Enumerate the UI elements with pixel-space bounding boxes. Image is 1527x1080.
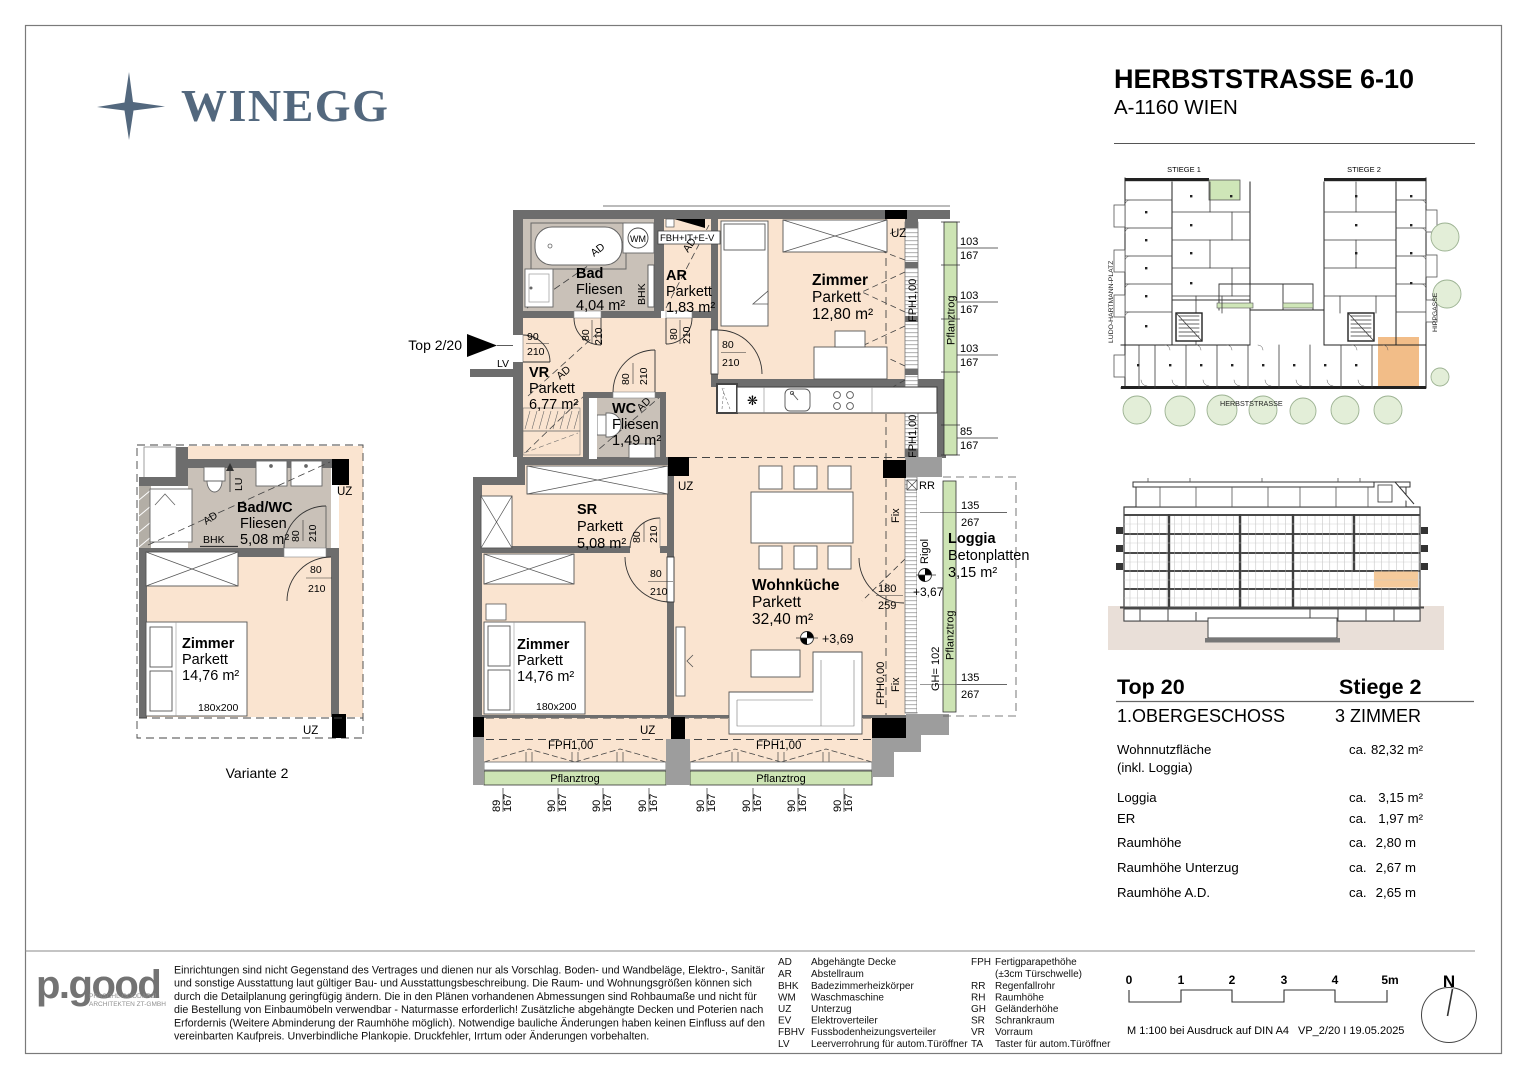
- svg-text:Fliesen: Fliesen: [612, 417, 659, 433]
- svg-text:210: 210: [722, 357, 740, 369]
- svg-text:STIEGE 2: STIEGE 2: [1347, 165, 1381, 174]
- svg-text:Raumhöhe Unterzug: Raumhöhe Unterzug: [1117, 860, 1239, 875]
- svg-text:HERBSTSTRASSE: HERBSTSTRASSE: [1220, 399, 1283, 408]
- svg-text:Zimmer: Zimmer: [517, 637, 570, 653]
- svg-text:LUDO-HARTMANN-PLATZ: LUDO-HARTMANN-PLATZ: [1108, 261, 1115, 343]
- svg-text:5,08 m²: 5,08 m²: [240, 532, 289, 548]
- svg-text:Zimmer: Zimmer: [812, 272, 868, 289]
- svg-text:90: 90: [527, 331, 539, 343]
- svg-text:Fertigparapethöhe: Fertigparapethöhe: [995, 957, 1077, 968]
- svg-text:180x200: 180x200: [198, 702, 238, 714]
- svg-text:Badezimmerheizkörper: Badezimmerheizkörper: [811, 981, 914, 992]
- svg-text:167: 167: [960, 440, 978, 452]
- svg-text:ARCHITEKTEN ZT-GMBH: ARCHITEKTEN ZT-GMBH: [89, 1001, 166, 1008]
- svg-text:Rigol: Rigol: [919, 539, 931, 564]
- svg-text:180x200: 180x200: [536, 701, 576, 713]
- svg-text:3,15 m²: 3,15 m²: [948, 565, 997, 581]
- svg-text:ca.: ca.: [1349, 860, 1367, 875]
- svg-text:103: 103: [960, 290, 978, 302]
- svg-text:1.OBERGESCHOSS: 1.OBERGESCHOSS: [1117, 706, 1285, 726]
- svg-text:12,80 m²: 12,80 m²: [812, 306, 873, 323]
- svg-text:Parkett: Parkett: [666, 284, 712, 300]
- svg-text:82,32 m²: 82,32 m²: [1371, 742, 1424, 757]
- svg-text:Geländerhöhe: Geländerhöhe: [995, 1004, 1059, 1015]
- svg-text:167: 167: [557, 794, 569, 812]
- svg-text:210: 210: [681, 326, 693, 344]
- svg-text:FPH1,00: FPH1,00: [907, 415, 919, 458]
- svg-text:14,76 m²: 14,76 m²: [182, 668, 239, 684]
- svg-text:167: 167: [706, 794, 718, 812]
- svg-text:AD: AD: [778, 957, 792, 968]
- svg-text:210: 210: [307, 524, 319, 542]
- svg-text:ca.: ca.: [1349, 790, 1367, 805]
- svg-text:3 ZIMMER: 3 ZIMMER: [1335, 706, 1421, 726]
- svg-text:ca.: ca.: [1349, 835, 1367, 850]
- svg-text:HERBSTSTRASSE 6-10: HERBSTSTRASSE 6-10: [1114, 64, 1414, 94]
- svg-text:Einrichtungen sind nicht Gegen: Einrichtungen sind nicht Gegenstand des …: [174, 965, 765, 977]
- svg-text:Pflanztrog: Pflanztrog: [550, 773, 600, 785]
- svg-text:Schrankraum: Schrankraum: [995, 1016, 1054, 1027]
- svg-text:(±3cm Türschwelle): (±3cm Türschwelle): [995, 969, 1082, 980]
- svg-text:Elektroverteiler: Elektroverteiler: [811, 1016, 878, 1027]
- svg-text:3: 3: [1281, 973, 1288, 987]
- svg-text:135: 135: [961, 672, 979, 684]
- svg-text:SR: SR: [971, 1016, 985, 1027]
- svg-text:Parkett: Parkett: [812, 289, 862, 306]
- svg-text:167: 167: [602, 794, 614, 812]
- svg-text:ca.: ca.: [1349, 742, 1367, 757]
- svg-text:80: 80: [650, 568, 662, 580]
- svg-text:167: 167: [960, 304, 978, 316]
- svg-text:Loggia: Loggia: [1117, 790, 1157, 805]
- svg-text:167: 167: [648, 794, 660, 812]
- svg-text:Pflanztrog: Pflanztrog: [945, 610, 957, 660]
- svg-text:4: 4: [1332, 973, 1339, 987]
- svg-text:167: 167: [502, 794, 514, 812]
- svg-text:210: 210: [638, 367, 650, 385]
- svg-text:259: 259: [878, 600, 896, 612]
- svg-text:2,67 m: 2,67 m: [1376, 860, 1416, 875]
- svg-text:Wohnküche: Wohnküche: [752, 577, 840, 594]
- svg-text:UZ: UZ: [891, 228, 906, 240]
- svg-text:GH: GH: [971, 1004, 986, 1015]
- svg-text:135: 135: [961, 500, 979, 512]
- svg-text:Raumhöhe A.D.: Raumhöhe A.D.: [1117, 885, 1210, 900]
- svg-text:Zimmer: Zimmer: [182, 636, 235, 652]
- svg-text:Parkett: Parkett: [752, 594, 802, 611]
- svg-text:Abgehängte Decke: Abgehängte Decke: [811, 957, 897, 968]
- svg-text:167: 167: [843, 794, 855, 812]
- svg-text:Waschmaschine: Waschmaschine: [811, 993, 884, 1004]
- svg-text:1,97 m²: 1,97 m²: [1378, 811, 1423, 826]
- svg-text:Parkett: Parkett: [577, 519, 623, 535]
- svg-text:80: 80: [310, 564, 322, 576]
- svg-text:80: 80: [620, 373, 632, 385]
- svg-text:1,49 m²: 1,49 m²: [612, 433, 661, 449]
- svg-text:ER: ER: [1117, 811, 1135, 826]
- svg-text:(inkl. Loggia): (inkl. Loggia): [1117, 760, 1193, 775]
- svg-text:1: 1: [1178, 973, 1185, 987]
- svg-text:267: 267: [961, 517, 979, 529]
- svg-text:vereinbarten Kaufpreis. Unverb: vereinbarten Kaufpreis. Unverbindliche P…: [174, 1031, 649, 1043]
- svg-text:1,83 m²: 1,83 m²: [666, 300, 715, 316]
- svg-text:4,04 m²: 4,04 m²: [576, 298, 625, 314]
- svg-text:WM: WM: [778, 993, 796, 1004]
- svg-text:6,77 m²: 6,77 m²: [529, 397, 578, 413]
- svg-text:Regenfallrohr: Regenfallrohr: [995, 981, 1056, 992]
- svg-text:UZ: UZ: [640, 725, 655, 737]
- svg-text:FPH: FPH: [971, 957, 991, 968]
- svg-text:die Bestellung von Einbaumöbel: die Bestellung von Einbaumöbeln verwendb…: [174, 1004, 763, 1016]
- svg-text:Parkett: Parkett: [517, 653, 563, 669]
- svg-text:2,80 m: 2,80 m: [1376, 835, 1416, 850]
- svg-text:5m: 5m: [1381, 973, 1398, 987]
- svg-text:PRASCHL-GOODARZI: PRASCHL-GOODARZI: [89, 993, 157, 1000]
- svg-text:Raumhöhe: Raumhöhe: [1117, 835, 1182, 850]
- svg-text:EV: EV: [778, 1016, 792, 1027]
- svg-text:HIPPGASSE: HIPPGASSE: [1432, 292, 1439, 332]
- svg-text:STIEGE 1: STIEGE 1: [1167, 165, 1201, 174]
- svg-text:Wohnnutzfläche: Wohnnutzfläche: [1117, 742, 1211, 757]
- svg-text:VR: VR: [971, 1027, 985, 1038]
- svg-text:Top 2/20: Top 2/20: [408, 337, 462, 353]
- svg-text:Fix: Fix: [890, 677, 902, 692]
- svg-text:Vorraum: Vorraum: [995, 1027, 1033, 1038]
- svg-text:ca.: ca.: [1349, 885, 1367, 900]
- svg-text:TA: TA: [971, 1039, 983, 1050]
- svg-text:ca.: ca.: [1349, 811, 1367, 826]
- svg-text:167: 167: [797, 794, 809, 812]
- svg-text:durch die Detailplanung gering: durch die Detailplanung geringfügig ände…: [174, 991, 757, 1003]
- svg-text:Pflanztrog: Pflanztrog: [946, 295, 958, 345]
- svg-text:3,15 m²: 3,15 m²: [1378, 790, 1423, 805]
- svg-text:Variante 2: Variante 2: [226, 765, 289, 781]
- svg-text:UZ: UZ: [337, 486, 352, 498]
- svg-text:Loggia: Loggia: [948, 531, 996, 547]
- svg-text:80: 80: [631, 531, 643, 543]
- svg-text:Parkett: Parkett: [182, 652, 228, 668]
- svg-text:2: 2: [1229, 973, 1236, 987]
- svg-text:Pflanztrog: Pflanztrog: [756, 773, 806, 785]
- svg-text:WC: WC: [612, 401, 637, 417]
- svg-text:80: 80: [668, 328, 680, 340]
- svg-text:Parkett: Parkett: [529, 381, 575, 397]
- svg-text:Bad/WC: Bad/WC: [237, 500, 293, 516]
- svg-text:Erfordernis (Weitere Abminderu: Erfordernis (Weitere Abminderung der Rau…: [174, 1017, 765, 1029]
- svg-text:167: 167: [960, 250, 978, 262]
- svg-text:FPH1,00: FPH1,00: [548, 740, 593, 752]
- svg-text:RH: RH: [971, 993, 985, 1004]
- svg-text:UZ: UZ: [678, 481, 693, 493]
- svg-text:103: 103: [960, 236, 978, 248]
- svg-text:Fliesen: Fliesen: [576, 282, 623, 298]
- svg-text:Bad: Bad: [576, 266, 603, 282]
- svg-text:AR: AR: [778, 969, 792, 980]
- svg-text:WINEGG: WINEGG: [181, 80, 389, 131]
- svg-text:Top 20: Top 20: [1117, 675, 1185, 699]
- svg-text:AR: AR: [666, 268, 687, 284]
- svg-text:Stiege 2: Stiege 2: [1339, 675, 1421, 699]
- svg-text:267: 267: [961, 689, 979, 701]
- svg-text:167: 167: [752, 794, 764, 812]
- svg-text:210: 210: [593, 327, 605, 345]
- svg-text:FBHV: FBHV: [778, 1027, 805, 1038]
- svg-text:2,65 m: 2,65 m: [1376, 885, 1416, 900]
- svg-text:VP_2/20 I 19.05.2025: VP_2/20 I 19.05.2025: [1298, 1025, 1404, 1037]
- svg-text:5,08 m²: 5,08 m²: [577, 536, 626, 552]
- svg-text:Fix: Fix: [890, 508, 902, 523]
- svg-text:+3,69: +3,69: [822, 632, 854, 646]
- svg-text:BHK: BHK: [778, 981, 799, 992]
- svg-text:210: 210: [308, 583, 326, 595]
- svg-text:180: 180: [878, 583, 896, 595]
- svg-text:A-1160 WIEN: A-1160 WIEN: [1114, 96, 1238, 119]
- svg-text:103: 103: [960, 343, 978, 355]
- svg-text:80: 80: [290, 530, 302, 542]
- svg-text:WM: WM: [630, 234, 646, 244]
- svg-text:UZ: UZ: [778, 1004, 791, 1015]
- svg-text:BHK: BHK: [636, 283, 648, 305]
- svg-text:SR: SR: [577, 502, 598, 518]
- svg-text:Raumhöhe: Raumhöhe: [995, 993, 1044, 1004]
- svg-text:210: 210: [527, 346, 545, 358]
- svg-text:Abstellraum: Abstellraum: [811, 969, 864, 980]
- svg-text:LV: LV: [497, 358, 509, 370]
- svg-text:RR: RR: [971, 981, 985, 992]
- svg-text:Betonplatten: Betonplatten: [948, 548, 1029, 564]
- svg-text:UZ: UZ: [303, 725, 318, 737]
- svg-text:und sonstige Ausstattung laut: und sonstige Ausstattung laut gültiger B…: [174, 978, 752, 990]
- svg-text:N: N: [1443, 972, 1455, 991]
- svg-text:M 1:100 bei Ausdruck auf DIN A: M 1:100 bei Ausdruck auf DIN A4: [1127, 1025, 1289, 1037]
- svg-text:BHK: BHK: [203, 534, 225, 546]
- svg-text:Unterzug: Unterzug: [811, 1004, 852, 1015]
- svg-text:14,76 m²: 14,76 m²: [517, 669, 574, 685]
- svg-text:Fussbodenheizungsverteiler: Fussbodenheizungsverteiler: [811, 1027, 937, 1038]
- svg-text:❋: ❋: [747, 393, 758, 408]
- svg-text:LV: LV: [778, 1039, 790, 1050]
- svg-text:210: 210: [648, 525, 660, 543]
- svg-text:0: 0: [1126, 973, 1133, 987]
- svg-text:FPH1,00: FPH1,00: [907, 279, 919, 322]
- svg-text:Taster für autom.Türöffner: Taster für autom.Türöffner: [995, 1039, 1111, 1050]
- svg-text:80: 80: [580, 329, 592, 341]
- svg-text:Leerverrohrung für autom.Türöf: Leerverrohrung für autom.Türöffner: [811, 1039, 968, 1050]
- svg-text:LU: LU: [233, 478, 245, 491]
- svg-text:32,40 m²: 32,40 m²: [752, 611, 813, 628]
- svg-text:FPH0,00: FPH0,00: [875, 662, 887, 705]
- svg-text:80: 80: [722, 339, 734, 351]
- svg-text:VR: VR: [529, 365, 550, 381]
- svg-text:210: 210: [650, 586, 668, 598]
- svg-text:85: 85: [960, 426, 972, 438]
- svg-text:Fliesen: Fliesen: [240, 516, 287, 532]
- svg-text:+3,67: +3,67: [913, 585, 944, 599]
- svg-text:FPH1,00: FPH1,00: [756, 740, 801, 752]
- svg-text:167: 167: [960, 357, 978, 369]
